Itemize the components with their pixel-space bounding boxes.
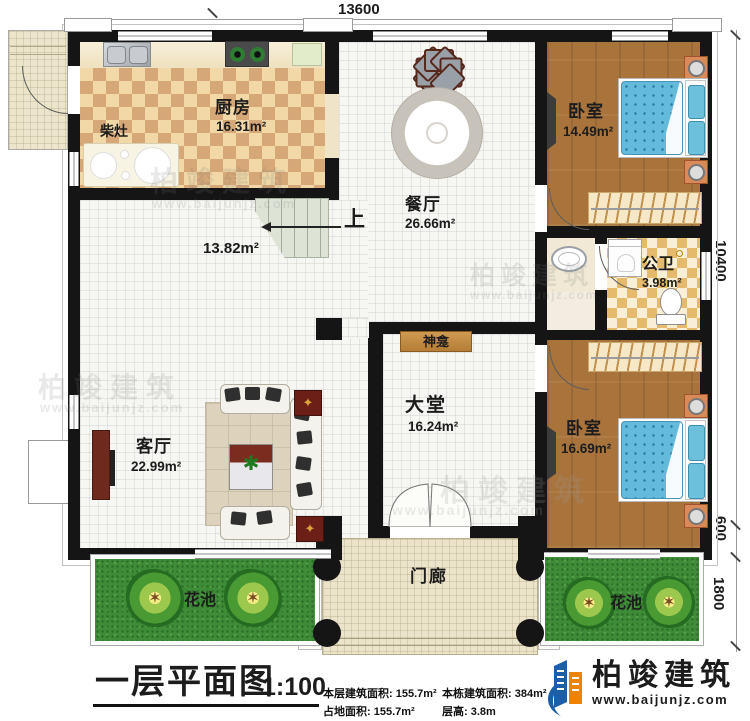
stairs-arrow-head bbox=[261, 222, 271, 232]
porch-label: 门廊 bbox=[410, 568, 448, 587]
brand-url: www.baijunjz.com bbox=[592, 693, 728, 707]
living-area-label: 22.99m² bbox=[131, 460, 181, 475]
bedroom-bottom-door-gap bbox=[535, 345, 547, 392]
stat-footprint-area: 占地面积: 155.7m² bbox=[323, 703, 415, 719]
porch-step-line bbox=[322, 638, 538, 639]
watermark: www.baijunjz.com bbox=[40, 400, 184, 415]
bedroom-bottom-area-label: 16.69m² bbox=[561, 442, 611, 457]
stat-value: 3.8m bbox=[471, 706, 496, 718]
coffee-table-symbol: ✱ bbox=[229, 444, 273, 490]
plan-title: 一层平面图 bbox=[95, 664, 275, 701]
porch-column bbox=[516, 553, 544, 581]
watermark: www.baijunjz.com bbox=[152, 196, 296, 211]
porch-step-line bbox=[322, 645, 538, 646]
stairs-arrow bbox=[271, 226, 341, 228]
bush-icon: ✶ bbox=[563, 577, 615, 629]
hall-area-label: 16.24m² bbox=[408, 420, 458, 435]
toilet-tank-symbol bbox=[656, 314, 686, 325]
window bbox=[69, 152, 79, 186]
kitchen-pass-opening bbox=[325, 94, 339, 158]
brand-logo-icon bbox=[541, 656, 591, 718]
side-table-symbol: ✦ bbox=[294, 390, 322, 416]
porch-column bbox=[313, 619, 341, 647]
nightstand-symbol bbox=[684, 56, 708, 80]
sofa-symbol bbox=[220, 384, 290, 414]
bed-symbol bbox=[618, 418, 708, 502]
window bbox=[118, 31, 212, 41]
stat-label: 本栋建筑面积: bbox=[442, 688, 512, 700]
stat-value: 155.7m² bbox=[374, 706, 415, 718]
bed-symbol bbox=[618, 78, 708, 158]
bathroom-label: 公卫 bbox=[642, 256, 674, 274]
stat-value: 155.7m² bbox=[396, 688, 437, 700]
stat-storey-height: 层高: 3.8m bbox=[442, 703, 496, 719]
tv-symbol bbox=[547, 92, 556, 150]
flower-bed-right-label: 花池 bbox=[610, 595, 642, 613]
hall-label: 大堂 bbox=[405, 396, 447, 417]
porch-column bbox=[516, 619, 544, 647]
column bbox=[316, 318, 342, 340]
nightstand-symbol bbox=[684, 394, 708, 418]
dimension-top: 13600 bbox=[338, 1, 380, 18]
wall-bay bbox=[672, 18, 722, 32]
stairs-up-label: 上 bbox=[344, 208, 365, 231]
dining-area-label: 26.66m² bbox=[405, 217, 455, 232]
brand-name: 柏竣建筑 bbox=[592, 659, 736, 692]
nightstand-symbol bbox=[684, 504, 708, 528]
bush-icon: ✶ bbox=[126, 569, 184, 627]
side-step bbox=[28, 440, 70, 504]
wall-bay bbox=[64, 18, 112, 32]
tv-cabinet-symbol bbox=[92, 430, 110, 500]
cutting-board-symbol bbox=[292, 43, 322, 66]
corridor-opening bbox=[339, 318, 369, 338]
watermark: www.baijunjz.com bbox=[392, 502, 545, 518]
kitchen-exterior-door-gap bbox=[68, 66, 80, 114]
floor-plan-canvas: 13600 10400 600 1800 ✶ ✶ 花池 ✶ ✶ 花池 bbox=[0, 0, 750, 721]
wardrobe-symbol bbox=[588, 342, 702, 372]
watermark: 柏竣建筑 bbox=[150, 160, 294, 200]
stat-label: 本层建筑面积: bbox=[323, 688, 393, 700]
plan-scale: 1:100 bbox=[262, 674, 326, 702]
hook-symbol bbox=[676, 250, 683, 257]
dining-label: 餐厅 bbox=[405, 196, 441, 215]
wall-bay bbox=[303, 18, 353, 32]
shrine-symbol: 神龛 bbox=[400, 331, 472, 352]
wardrobe-symbol bbox=[588, 192, 702, 224]
tv-symbol bbox=[110, 450, 115, 486]
window bbox=[195, 549, 331, 559]
watermark: 柏竣建筑 bbox=[470, 256, 594, 292]
kitchen-label: 厨房 bbox=[215, 99, 251, 118]
stat-total-area: 本栋建筑面积: 384m² bbox=[442, 685, 547, 701]
hall-door-gap bbox=[390, 526, 470, 538]
dimension-right-lower: 1800 bbox=[710, 577, 727, 610]
bedroom-bottom-label: 卧室 bbox=[566, 420, 602, 439]
corridor-area-label: 13.82m² bbox=[203, 241, 259, 258]
wood-stove-label: 柴灶 bbox=[100, 124, 128, 139]
watermark: www.baijunjz.com bbox=[470, 288, 598, 302]
kitchen-sink-symbol bbox=[103, 42, 151, 67]
washing-machine-symbol bbox=[608, 239, 642, 277]
stat-floor-area: 本层建筑面积: 155.7m² bbox=[323, 685, 437, 701]
window bbox=[373, 31, 487, 41]
window bbox=[588, 549, 660, 559]
bush-icon: ✶ bbox=[643, 576, 695, 628]
dimension-line-top bbox=[70, 19, 712, 20]
bedroom-top-label: 卧室 bbox=[568, 103, 604, 122]
window bbox=[701, 252, 711, 300]
flower-bed-left-label: 花池 bbox=[184, 592, 216, 610]
plant-icon: ✱ bbox=[243, 453, 260, 475]
side-table-symbol: ✦ bbox=[296, 516, 324, 542]
shrine-label: 神龛 bbox=[423, 334, 449, 349]
toilet-symbol bbox=[660, 288, 682, 316]
bedroom-top-area-label: 14.49m² bbox=[563, 125, 613, 140]
patio-step-line bbox=[10, 46, 66, 47]
stat-label: 占地面积: bbox=[323, 706, 371, 718]
bathroom-area-label: 3.98m² bbox=[642, 277, 682, 291]
stat-label: 层高: bbox=[442, 706, 468, 718]
bedroom-top-door-gap bbox=[535, 185, 547, 232]
title-underline bbox=[93, 704, 319, 707]
bush-icon: ✶ bbox=[224, 569, 282, 627]
dimension-tick bbox=[207, 8, 218, 19]
kitchen-area-label: 16.31m² bbox=[216, 120, 266, 135]
sofa-symbol bbox=[220, 506, 290, 540]
window bbox=[612, 31, 668, 41]
gas-stove-symbol bbox=[225, 41, 269, 67]
nightstand-symbol bbox=[684, 160, 708, 184]
living-label: 客厅 bbox=[136, 438, 172, 457]
patio-step-line bbox=[10, 54, 66, 55]
